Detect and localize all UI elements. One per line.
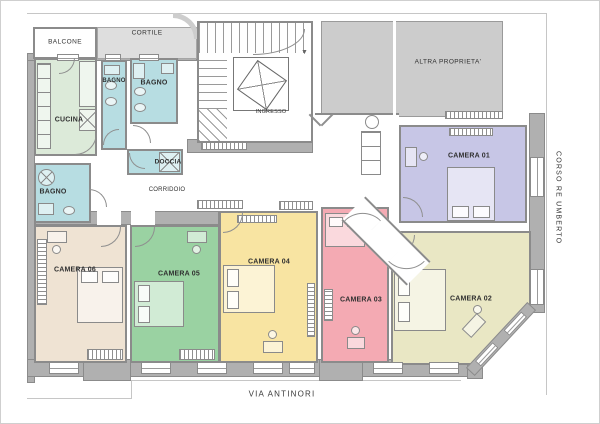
radiator-icon <box>201 142 247 150</box>
window <box>105 54 121 61</box>
window <box>49 362 79 374</box>
round-table-icon <box>365 115 379 129</box>
window <box>253 362 283 374</box>
other-property <box>321 21 503 117</box>
sink-icon <box>133 63 145 79</box>
window <box>429 362 459 374</box>
kitchen-sink-icon <box>79 61 96 107</box>
chair-icon <box>351 326 360 335</box>
wardrobe-icon <box>307 283 315 337</box>
floor-plan: ▼ <box>0 0 600 424</box>
shower-tray-icon <box>38 169 55 186</box>
window <box>530 157 544 197</box>
other-property-divider <box>393 21 396 117</box>
chair-icon <box>268 330 277 339</box>
window <box>373 362 403 374</box>
label-balcone: BALCONE <box>48 39 82 46</box>
bed-icon <box>447 167 495 221</box>
elevator-car-icon <box>237 60 287 110</box>
sidewalk-line-left <box>27 398 131 399</box>
sink-icon <box>38 203 54 215</box>
courtyard-curved-railing <box>173 13 199 39</box>
wardrobe-icon <box>37 239 47 305</box>
toilet-icon <box>134 87 146 96</box>
window <box>197 362 227 374</box>
radiator-icon <box>237 215 277 223</box>
bed-icon <box>77 267 123 323</box>
label-corso-re-umberto: CORSO RE UMBERTO <box>555 151 562 301</box>
chair-icon <box>192 245 201 254</box>
bidet-icon <box>134 103 146 112</box>
label-bagno-3: BAGNO <box>39 189 66 196</box>
radiator-icon <box>279 201 313 210</box>
kitchen-counter-icon <box>37 63 51 149</box>
bed-icon <box>223 265 275 313</box>
label-bagno-1: BAGNO <box>102 78 125 84</box>
label-bagno-2: BAGNO <box>140 80 167 87</box>
label-cucina: CUCINA <box>55 117 83 124</box>
desk-icon <box>187 231 207 243</box>
chair-icon <box>419 152 428 161</box>
toilet-icon <box>63 206 75 215</box>
radiator-icon <box>324 289 333 321</box>
chair-icon <box>473 305 482 314</box>
stair-winders <box>199 109 227 141</box>
sink-icon <box>104 65 120 75</box>
label-corridoio: CORRIDOIO <box>149 187 185 193</box>
radiator-icon <box>449 128 493 136</box>
sidewalk-step <box>131 380 132 399</box>
desk-icon <box>405 147 417 167</box>
window <box>141 362 171 374</box>
sidewalk-line-right <box>131 380 461 381</box>
window-band <box>445 111 503 119</box>
stairwell: ▼ <box>197 21 313 143</box>
sink-icon <box>161 63 174 74</box>
lot-boundary-top <box>27 13 547 14</box>
label-camera-04: CAMERA 04 <box>248 259 290 266</box>
radiator-icon <box>179 349 215 360</box>
window <box>289 362 315 374</box>
radiator-icon <box>87 349 123 360</box>
stair-direction-arrow: ▼ <box>301 49 308 56</box>
label-camera-02: CAMERA 02 <box>450 296 492 303</box>
elevator-shaft <box>233 57 289 111</box>
label-camera-06: CAMERA 06 <box>54 267 96 274</box>
bed-icon <box>134 281 184 327</box>
label-camera-01: CAMERA 01 <box>448 153 490 160</box>
window <box>139 54 159 61</box>
lot-boundary-right <box>546 13 547 395</box>
label-doccia: DOCCIA <box>155 159 182 166</box>
desk-icon <box>347 337 365 349</box>
label-altra-proprieta: ALTRA PROPRIETA' <box>415 59 482 66</box>
door-gap-camera05 <box>131 211 155 225</box>
door-gap-camera06 <box>97 211 121 225</box>
label-camera-03: CAMERA 03 <box>340 297 382 304</box>
label-camera-05: CAMERA 05 <box>158 271 200 278</box>
radiator-icon <box>197 200 243 209</box>
desk-icon <box>263 341 283 353</box>
sofa-icon <box>361 131 381 175</box>
bidet-icon <box>105 97 117 106</box>
desk-icon <box>47 231 67 243</box>
label-via-antinori: VIA ANTINORI <box>249 390 316 399</box>
stair-treads-left <box>199 53 227 109</box>
door-arc <box>133 125 151 143</box>
chair-icon <box>52 245 61 254</box>
label-cortile: CORTILE <box>132 30 163 37</box>
window <box>530 269 544 305</box>
label-ingresso: INGRESSO <box>256 109 287 115</box>
